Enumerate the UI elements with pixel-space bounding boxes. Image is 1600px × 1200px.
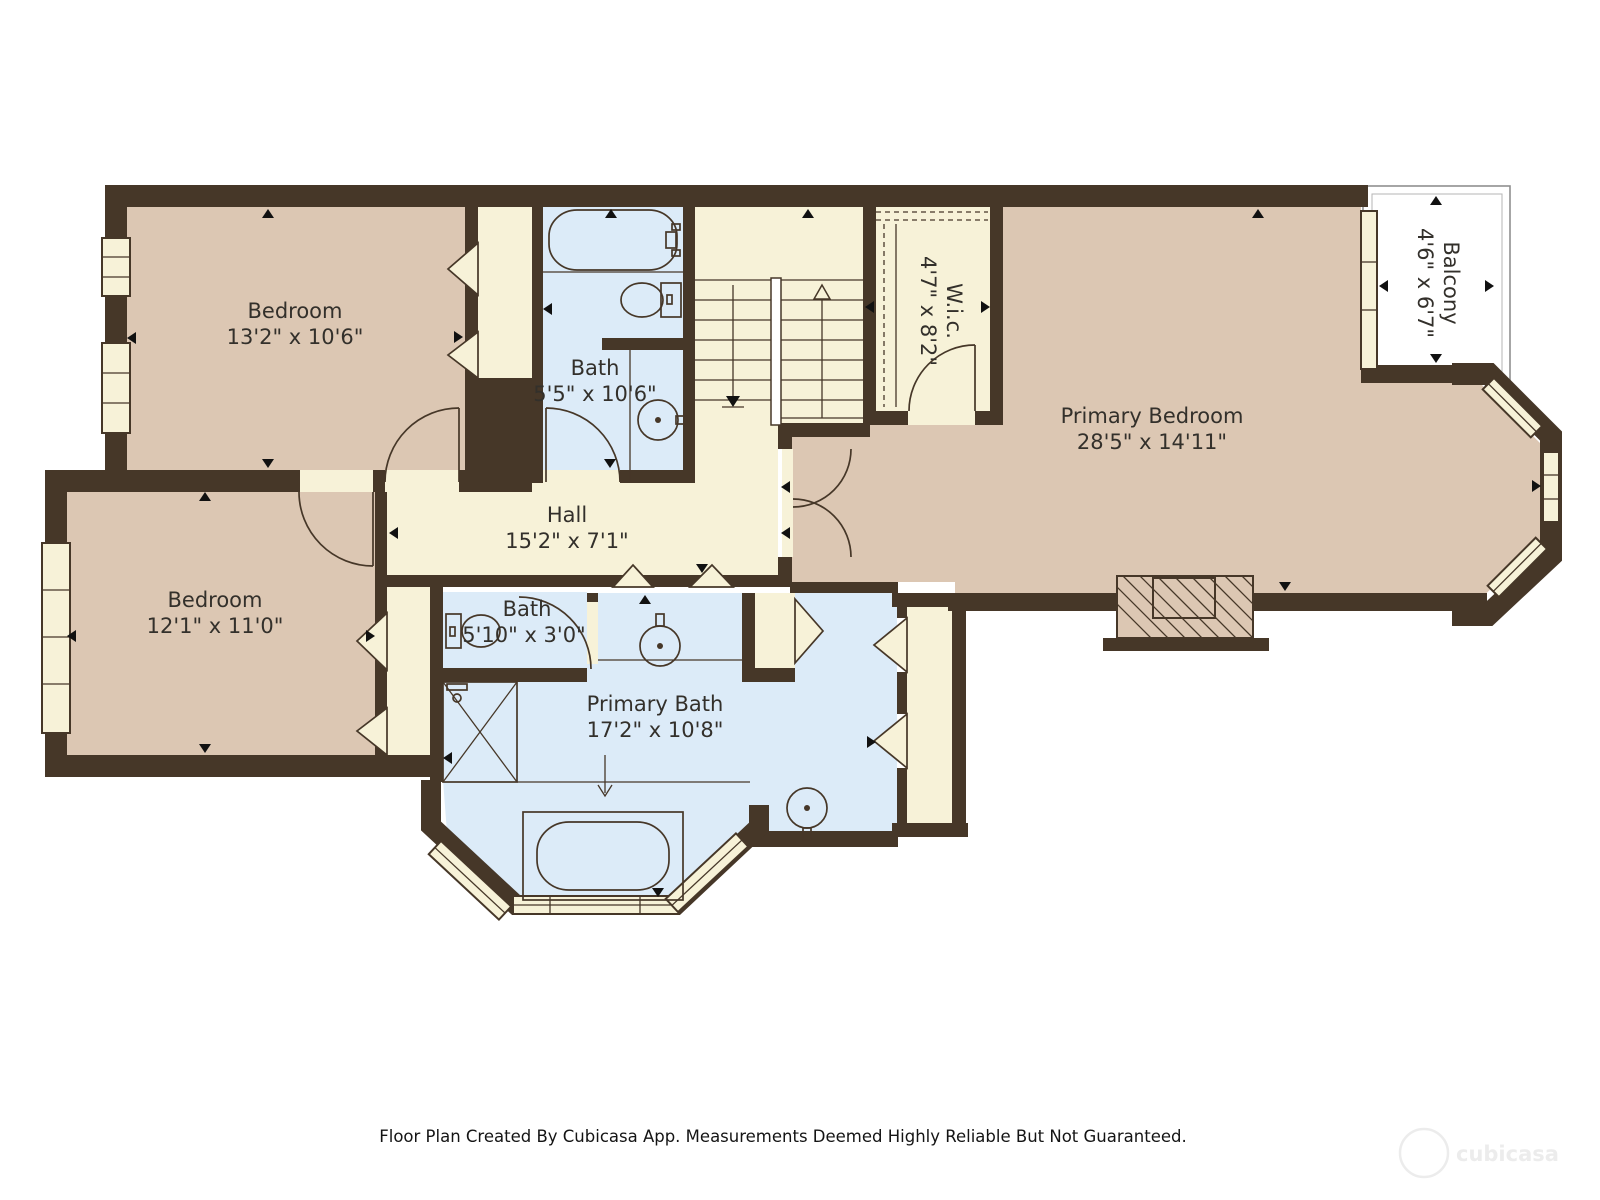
window-bay-bath-bottom <box>513 896 679 914</box>
watermark-logo: cubicasa <box>1400 1129 1559 1177</box>
wall-bath2-left <box>430 587 443 782</box>
bedroom2-dims: 12'1" x 11'0" <box>147 614 284 638</box>
watermark-circle-icon <box>1400 1129 1448 1177</box>
wall-bath2-bottom <box>430 668 587 682</box>
floor-plan-page: Bedroom 13'2" x 10'6" Bath 5'5" x 10'6" … <box>0 0 1600 1200</box>
bedroom1-name: Bedroom <box>248 299 343 323</box>
stair-divider <box>771 278 781 425</box>
bedroom1-dims: 13'2" x 10'6" <box>227 325 364 349</box>
primary-bath-dims: 17'2" x 10'8" <box>587 718 724 742</box>
primary-bedroom-dims: 28'5" x 14'11" <box>1077 430 1227 454</box>
wall-bath1-left <box>532 207 543 483</box>
wall-top-exterior <box>105 185 1368 207</box>
bath2-door-gap <box>587 602 598 664</box>
wall-left-upper <box>105 185 127 480</box>
watermark-text: cubicasa <box>1456 1142 1559 1166</box>
hall-name: Hall <box>547 503 587 527</box>
floor-plan-drawing: Bedroom 13'2" x 10'6" Bath 5'5" x 10'6" … <box>0 0 1600 1200</box>
double-door-gap <box>782 449 793 557</box>
wall-wic-bottom-right <box>975 411 1003 425</box>
wall-bedroom2-bottom <box>45 755 437 777</box>
wall-wic-right <box>990 185 1003 425</box>
wall-primary-bedroom-bottom-left <box>948 593 1118 611</box>
wall-primary-bath-bottom-right <box>750 831 898 847</box>
wall-bath1-bottom <box>620 470 695 483</box>
primary-bedroom-name: Primary Bedroom <box>1061 404 1244 428</box>
bath2-name: Bath <box>503 597 552 621</box>
bedroom2-name: Bedroom <box>168 588 263 612</box>
window-bedroom1-b <box>102 343 130 433</box>
wall-wic-bottom-left <box>863 411 908 425</box>
wall-under-fireplace <box>1103 638 1269 651</box>
bedroom1-door-gap <box>385 470 459 492</box>
wall-linen-left <box>742 593 755 680</box>
bath1-door-gap <box>543 470 620 483</box>
window-bedroom1-a <box>102 238 130 296</box>
wall-primary-bedroom-bottom-right <box>1253 593 1487 611</box>
window-bay-bedroom-right <box>1543 452 1559 522</box>
wall-mass-center <box>465 378 533 483</box>
primary-bath-name: Primary Bath <box>587 692 724 716</box>
balcony-name: Balcony <box>1439 241 1463 324</box>
footer-disclaimer: Floor Plan Created By Cubicasa App. Meas… <box>379 1127 1186 1146</box>
wic-name: W.i.c. <box>942 283 966 339</box>
bath1-dims: 5'5" x 10'6" <box>533 382 656 406</box>
wic-dims: 4'7" x 8'2" <box>916 256 940 366</box>
wall-primary-closet-right <box>952 607 966 837</box>
hall-dims: 15'2" x 7'1" <box>505 529 628 553</box>
wall-bath1-stub <box>602 338 683 350</box>
wall-primary-closet-seg2 <box>897 672 907 714</box>
bedroom2-closet-floor <box>387 587 430 757</box>
window-balcony-door <box>1361 211 1377 369</box>
bath1-name: Bath <box>571 356 620 380</box>
wall-linen-bottom <box>742 668 795 682</box>
room-fills <box>67 186 1546 901</box>
wall-vestibule-bottom <box>790 582 898 593</box>
bath2-dims: 5'10" x 3'0" <box>462 623 585 647</box>
wall-primary-closet-seg3 <box>897 768 907 826</box>
balcony-dims: 4'6" x 6'7" <box>1413 228 1437 338</box>
bedroom1-closet-floor <box>478 207 532 378</box>
wic-door-gap <box>908 411 975 425</box>
linen-closet-floor <box>755 593 795 668</box>
wall-primary-closet-seg1 <box>897 607 907 618</box>
wall-doorjamb-top <box>778 423 792 449</box>
wall-bath1-right <box>683 207 695 483</box>
wall-primary-closet-bottom <box>892 823 968 837</box>
primary-closet-floor <box>907 607 952 823</box>
window-bedroom2 <box>42 543 70 733</box>
bedroom2-door-gap <box>300 470 373 492</box>
